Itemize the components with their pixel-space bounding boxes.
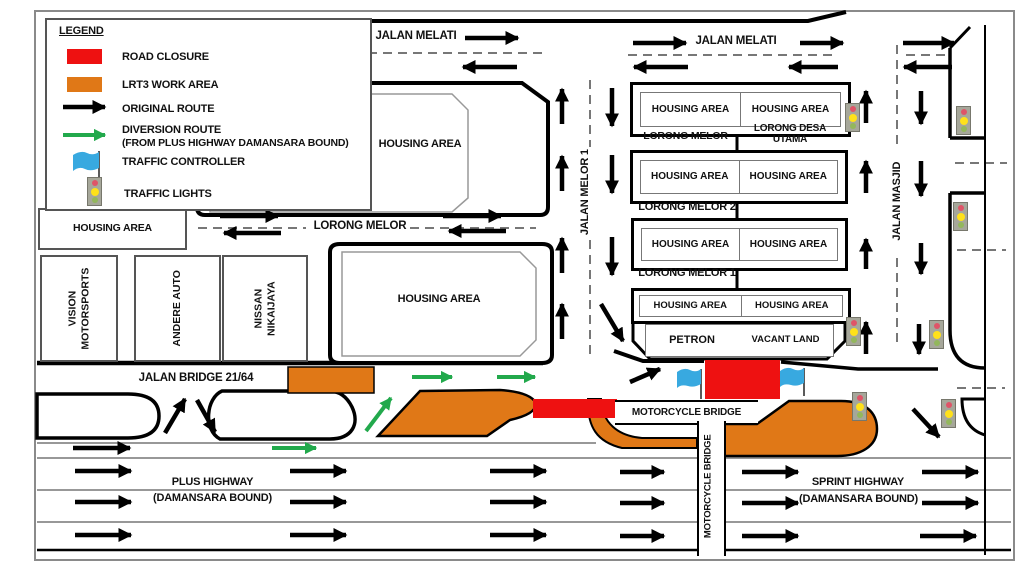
traffic-islands: [37, 391, 355, 439]
street-label-lorong-melor: LORONG MELOR: [633, 131, 738, 143]
traffic-light-icon: [941, 399, 956, 428]
housing-cell: HOUSING AREA: [741, 92, 841, 127]
housing-row-2: HOUSING AREA HOUSING AREA: [630, 150, 848, 204]
vacant-land: VACANT LAND: [738, 324, 834, 357]
traffic-light-icon: [846, 317, 861, 346]
road-label-plus-highway-bound: (DAMANSARA BOUND): [139, 492, 286, 504]
legend-diversion-route-note: (FROM PLUS HIGHWAY DAMANSARA BOUND): [122, 138, 349, 150]
street-label-lorong-melor-1: LORONG MELOR 1: [631, 267, 743, 279]
road-label-jalan-melati-east: JALAN MELATI: [690, 35, 782, 48]
legend-traffic-controller-label: TRAFFIC CONTROLLER: [122, 156, 245, 168]
road-label-plus-highway: PLUS HIGHWAY: [150, 476, 275, 488]
legend-road-closure-label: ROAD CLOSURE: [122, 51, 209, 63]
traffic-diversion-map: { "legend": { "title": "LEGEND", "road_c…: [0, 0, 1024, 576]
street-label-lorong-desa-utama: LORONG DESA UTAMA: [742, 123, 838, 145]
traffic-light-icon: [852, 392, 867, 421]
legend-lrt3-label: LRT3 WORK AREA: [122, 79, 218, 91]
housing-cell: HOUSING AREA: [640, 92, 741, 127]
traffic-light-icon: [845, 103, 860, 132]
original-route-arrow-icon: [61, 100, 113, 114]
traffic-light-icon: [953, 202, 968, 231]
diversion-route-arrow-icon: [61, 128, 113, 142]
road-label-sprint-highway-bound: (DAMANSARA BOUND): [786, 493, 931, 505]
housing-cell: HOUSING AREA: [640, 160, 740, 194]
legend-traffic-lights-label: TRAFFIC LIGHTS: [124, 188, 212, 200]
legend-panel: LEGEND ROAD CLOSURE LRT3 WORK AREA ORIGI…: [45, 18, 372, 211]
housing-cell: HOUSING AREA: [742, 295, 844, 317]
road-label-sprint-highway: SPRINT HIGHWAY: [797, 476, 919, 488]
traffic-light-icon: [956, 106, 971, 135]
housing-cell: HOUSING AREA: [740, 160, 839, 194]
road-label-jalan-melati-west: JALAN MELATI: [370, 30, 462, 43]
housing-area-center-label: HOUSING AREA: [375, 293, 503, 305]
housing-row-4: HOUSING AREA HOUSING AREA: [631, 288, 851, 324]
vision-motorsports-lot: VISION MOTORSPORTS: [40, 255, 118, 362]
road-label-jalan-melor-1: JALAN MELOR 1: [579, 146, 591, 238]
housing-cell: HOUSING AREA: [641, 228, 740, 261]
lrt3-work-area-swatch: [67, 77, 102, 92]
road-label-jalan-masjid: JALAN MASJID: [891, 145, 903, 257]
housing-area-nw-label: HOUSING AREA: [355, 138, 485, 150]
motorcycle-bridge-ramp: MOTORCYCLE BRIDGE: [615, 400, 758, 425]
andere-auto-lot: ANDERE AUTO: [134, 255, 221, 362]
legend-title: LEGEND: [59, 25, 104, 37]
petron-station: PETRON: [645, 324, 739, 357]
housing-area-west: HOUSING AREA: [38, 208, 187, 250]
road-label-lorong-melor: LORONG MELOR: [308, 220, 412, 233]
traffic-light-icon: [929, 320, 944, 349]
housing-cell: HOUSING AREA: [639, 295, 742, 317]
housing-cell: HOUSING AREA: [740, 228, 838, 261]
legend-original-route-label: ORIGINAL ROUTE: [122, 103, 214, 115]
road-closure-swatch: [67, 49, 102, 64]
traffic-light-icon: [87, 177, 102, 206]
nissan-nikaijaya-lot: NISSAN NIKAIJAYA: [222, 255, 308, 362]
road-label-motorcycle-bridge: MOTORCYCLE BRIDGE: [704, 424, 715, 548]
housing-row-3: HOUSING AREA HOUSING AREA: [631, 218, 848, 271]
legend-diversion-route-label: DIVERSION ROUTE: [122, 124, 221, 136]
road-label-jalan-bridge-21-64: JALAN BRIDGE 21/64: [130, 372, 262, 385]
street-label-lorong-melor-2: LORONG MELOR 2: [631, 201, 743, 213]
